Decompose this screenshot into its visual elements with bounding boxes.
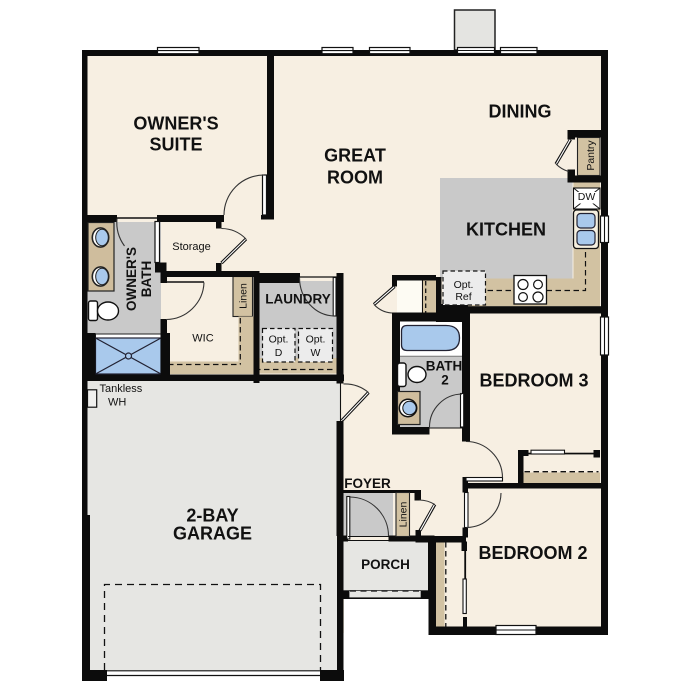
svg-text:BEDROOM 3: BEDROOM 3	[479, 371, 588, 391]
svg-text:W: W	[311, 347, 321, 359]
svg-text:DINING: DINING	[489, 102, 552, 122]
svg-text:Opt.: Opt.	[269, 334, 289, 346]
svg-text:Linen: Linen	[398, 502, 410, 528]
svg-text:2: 2	[441, 373, 449, 388]
svg-text:GARAGE: GARAGE	[173, 524, 252, 544]
svg-text:Opt.: Opt.	[306, 334, 326, 346]
svg-text:FOYER: FOYER	[344, 476, 391, 491]
svg-text:PORCH: PORCH	[361, 557, 410, 572]
svg-text:DW: DW	[578, 191, 596, 203]
svg-text:ROOM: ROOM	[327, 168, 383, 188]
svg-text:Pantry: Pantry	[585, 140, 597, 171]
svg-text:LAUNDRY: LAUNDRY	[265, 292, 331, 307]
svg-text:SUITE: SUITE	[149, 135, 202, 155]
svg-text:OWNER'S: OWNER'S	[124, 247, 139, 311]
svg-text:Tankless: Tankless	[100, 383, 143, 395]
svg-text:GREAT: GREAT	[324, 146, 386, 166]
svg-text:WIC: WIC	[192, 333, 213, 345]
svg-text:Ref: Ref	[455, 291, 471, 303]
svg-text:BEDROOM 2: BEDROOM 2	[478, 543, 587, 563]
svg-text:BATH: BATH	[426, 359, 463, 374]
svg-text:Opt.: Opt.	[454, 279, 474, 291]
svg-text:BATH: BATH	[139, 261, 154, 298]
svg-text:OWNER'S: OWNER'S	[133, 114, 218, 134]
svg-text:KITCHEN: KITCHEN	[466, 220, 546, 240]
svg-text:WH: WH	[108, 397, 126, 409]
svg-text:Storage: Storage	[172, 241, 211, 253]
svg-text:D: D	[275, 347, 283, 359]
svg-text:Linen: Linen	[238, 283, 250, 309]
svg-text:2-BAY: 2-BAY	[186, 506, 238, 526]
